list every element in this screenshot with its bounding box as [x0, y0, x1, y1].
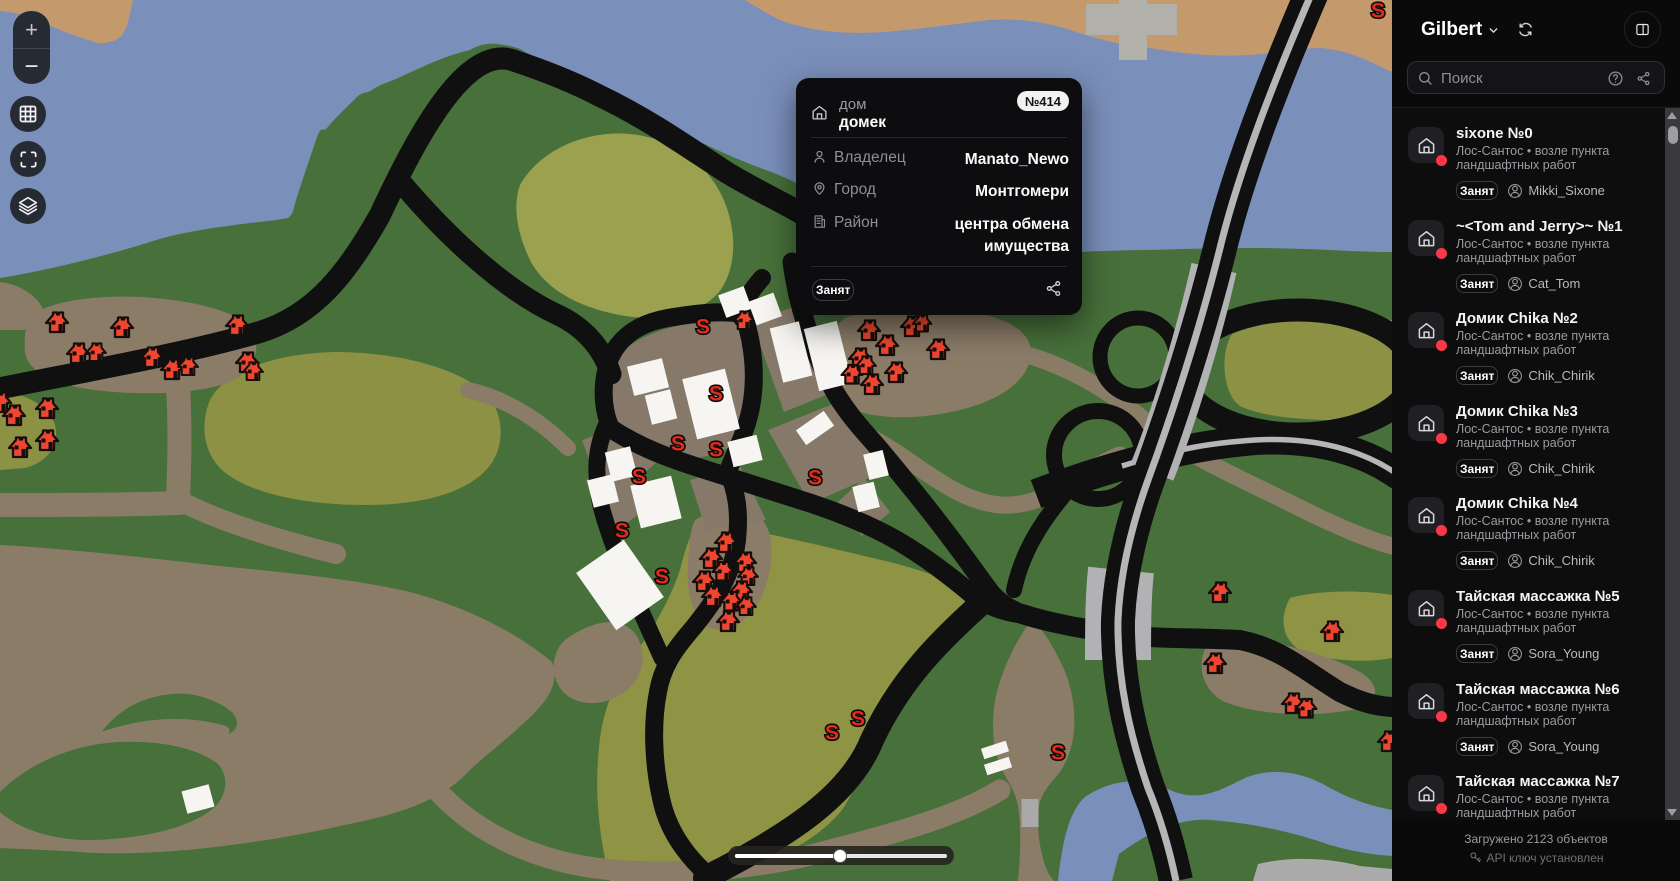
- svg-text:S: S: [1371, 0, 1385, 23]
- svg-text:S: S: [808, 467, 822, 490]
- svg-text:S: S: [615, 520, 629, 543]
- svg-text:S: S: [709, 439, 723, 462]
- svg-text:S: S: [655, 566, 669, 589]
- svg-text:S: S: [851, 708, 865, 731]
- svg-text:S: S: [696, 316, 710, 339]
- svg-text:S: S: [825, 722, 839, 745]
- svg-text:S: S: [709, 383, 723, 406]
- svg-text:S: S: [1051, 742, 1065, 765]
- svg-text:S: S: [671, 433, 685, 456]
- svg-text:S: S: [632, 466, 646, 489]
